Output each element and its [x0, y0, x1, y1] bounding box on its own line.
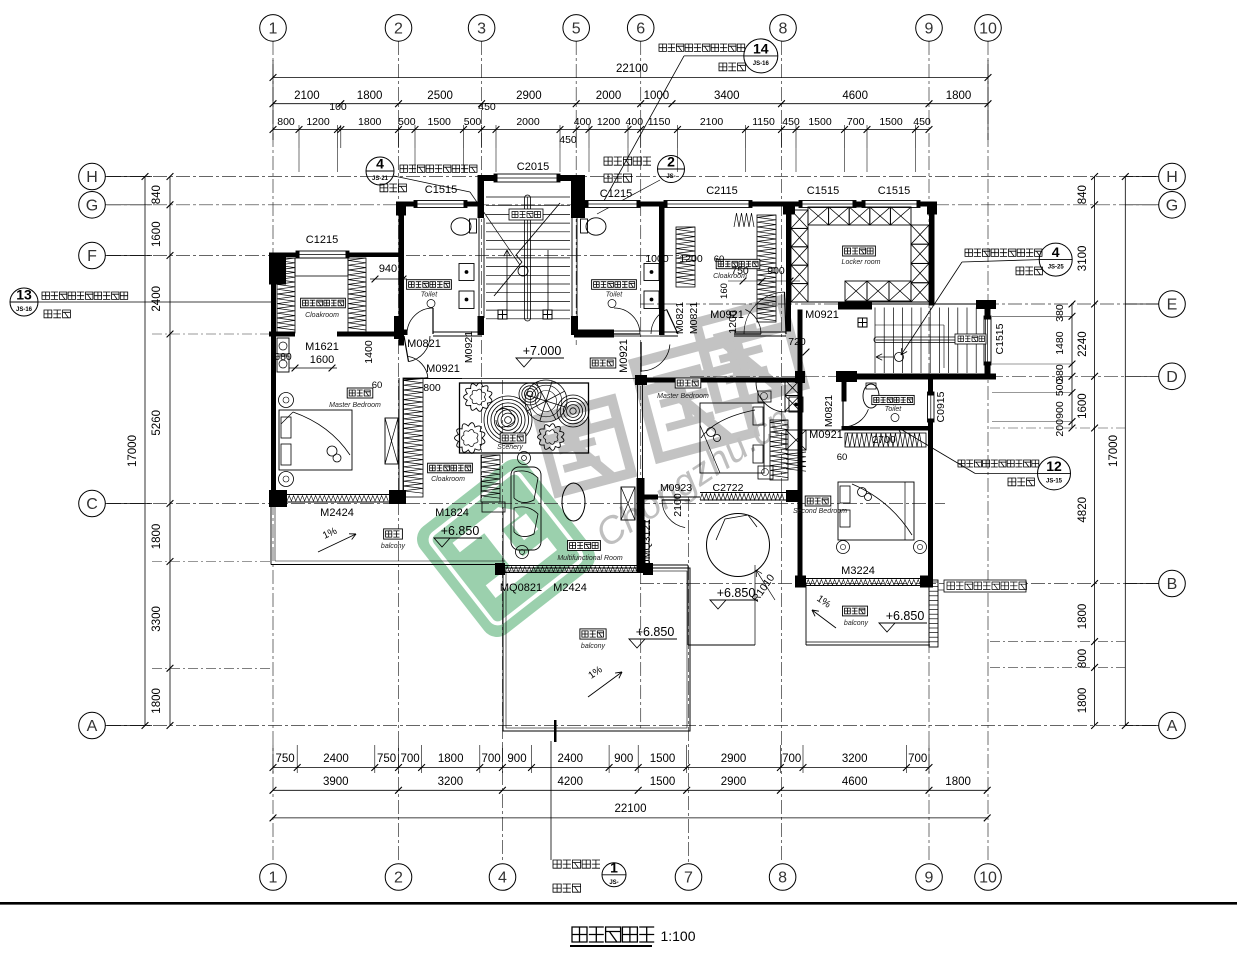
svg-text:C1515: C1515	[994, 323, 1006, 354]
svg-text:JS-16: JS-16	[753, 61, 770, 67]
svg-text:3300: 3300	[151, 606, 163, 632]
svg-text:7: 7	[684, 870, 693, 887]
svg-text:JS-15: JS-15	[1046, 478, 1063, 484]
svg-text:450: 450	[782, 116, 800, 128]
svg-text:1200: 1200	[306, 116, 330, 128]
svg-text:4: 4	[498, 870, 507, 887]
svg-text:22100: 22100	[615, 803, 647, 815]
svg-text:balcony: balcony	[581, 643, 606, 650]
svg-text:60: 60	[372, 380, 383, 391]
svg-text:1: 1	[269, 20, 278, 37]
svg-text:900: 900	[767, 265, 785, 277]
svg-text:750: 750	[377, 753, 396, 765]
svg-text:JS-: JS-	[609, 880, 618, 886]
svg-text:1800: 1800	[358, 116, 382, 128]
svg-text:2100: 2100	[672, 493, 684, 517]
svg-text:+6.850: +6.850	[717, 586, 756, 600]
svg-text:450: 450	[913, 116, 931, 128]
svg-text:200: 200	[1054, 419, 1066, 437]
svg-text:+6.850: +6.850	[886, 609, 925, 623]
svg-text:9: 9	[925, 870, 934, 887]
svg-text:750: 750	[731, 265, 749, 277]
svg-text:1480: 1480	[1054, 331, 1066, 355]
svg-text:1600: 1600	[310, 354, 334, 366]
svg-text:H: H	[86, 169, 98, 186]
svg-text:balcony: balcony	[381, 543, 406, 550]
svg-text:3100: 3100	[1077, 246, 1089, 272]
svg-text:1800: 1800	[151, 524, 163, 550]
svg-text:M0821: M0821	[407, 338, 441, 350]
svg-text:2000: 2000	[516, 116, 540, 128]
svg-text:2: 2	[394, 870, 403, 887]
svg-text:1800: 1800	[946, 90, 972, 102]
svg-text:1000: 1000	[645, 253, 669, 265]
svg-text:17000: 17000	[127, 435, 139, 467]
svg-text:1: 1	[610, 859, 618, 875]
svg-text:750: 750	[276, 753, 295, 765]
svg-text:100: 100	[329, 101, 347, 113]
svg-text:1150: 1150	[752, 116, 775, 128]
svg-text:+6.850: +6.850	[636, 625, 675, 639]
svg-text:Cloakroom: Cloakroom	[305, 312, 339, 319]
svg-text:2700: 2700	[872, 434, 896, 446]
svg-text:JS-25: JS-25	[1048, 265, 1065, 271]
svg-text:F: F	[87, 248, 97, 265]
svg-text:8: 8	[779, 20, 788, 37]
svg-text:1500: 1500	[879, 116, 903, 128]
svg-text:C2722: C2722	[713, 482, 744, 494]
svg-text:500: 500	[464, 116, 482, 128]
svg-text:C1215: C1215	[306, 234, 338, 246]
svg-text:4600: 4600	[842, 90, 868, 102]
svg-text:1: 1	[269, 870, 278, 887]
svg-text:450: 450	[559, 134, 577, 146]
svg-text:C1515: C1515	[807, 185, 839, 197]
svg-text:1800: 1800	[945, 776, 971, 788]
svg-text:C: C	[86, 496, 98, 513]
svg-text:2400: 2400	[151, 286, 163, 312]
svg-text:14: 14	[753, 40, 769, 56]
svg-text:13: 13	[16, 287, 32, 303]
svg-text:3900: 3900	[323, 776, 349, 788]
svg-text:2900: 2900	[721, 753, 747, 765]
svg-text:+7.000: +7.000	[523, 344, 562, 358]
svg-text:4: 4	[1052, 244, 1060, 260]
svg-text:1500: 1500	[650, 776, 676, 788]
svg-text:160: 160	[719, 283, 730, 299]
svg-text:700: 700	[847, 116, 865, 128]
svg-text:500: 500	[1054, 378, 1066, 396]
svg-text:6: 6	[636, 20, 645, 37]
svg-text:E: E	[1167, 297, 1178, 314]
svg-text:3200: 3200	[438, 776, 464, 788]
svg-text:G: G	[1166, 197, 1178, 214]
svg-text:1400: 1400	[363, 340, 375, 364]
svg-text:2240: 2240	[1077, 331, 1089, 357]
svg-text:2400: 2400	[323, 753, 349, 765]
svg-text:M2424: M2424	[320, 507, 354, 519]
svg-text:1800: 1800	[1077, 688, 1089, 714]
svg-text:1800: 1800	[151, 688, 163, 714]
svg-text:2: 2	[394, 20, 403, 37]
svg-text:700: 700	[482, 753, 501, 765]
svg-text:1600: 1600	[1077, 393, 1089, 419]
svg-text:700: 700	[908, 753, 927, 765]
svg-text:JS-16: JS-16	[16, 307, 33, 313]
svg-text:2100: 2100	[294, 90, 320, 102]
svg-text:2500: 2500	[427, 90, 453, 102]
svg-text:680: 680	[274, 351, 292, 363]
svg-text:M0821: M0821	[688, 302, 700, 334]
svg-text:M0821: M0821	[674, 302, 686, 334]
svg-text:C0915: C0915	[935, 391, 947, 422]
svg-text:B: B	[1167, 576, 1178, 593]
svg-text:H: H	[1166, 169, 1178, 186]
svg-text:500: 500	[398, 116, 416, 128]
svg-text:12: 12	[1046, 458, 1062, 474]
svg-text:10: 10	[979, 20, 997, 37]
svg-text:840: 840	[151, 185, 163, 204]
svg-text:Cloakroom: Cloakroom	[431, 476, 465, 483]
svg-text:380: 380	[1054, 304, 1066, 322]
svg-text:M0821: M0821	[823, 395, 835, 427]
svg-text:1800: 1800	[1077, 604, 1089, 630]
svg-text:2400: 2400	[558, 753, 584, 765]
svg-text:22100: 22100	[616, 63, 648, 75]
svg-text:MQ0821: MQ0821	[500, 582, 542, 594]
svg-text:1600: 1600	[151, 221, 163, 247]
svg-text:JS-21: JS-21	[372, 176, 389, 182]
svg-text:8: 8	[778, 870, 787, 887]
svg-text:M2424: M2424	[553, 582, 587, 594]
svg-text:1000: 1000	[644, 90, 670, 102]
svg-text:450: 450	[478, 101, 496, 113]
svg-text:G: G	[86, 197, 98, 214]
svg-text:900: 900	[507, 753, 526, 765]
svg-text:A: A	[87, 718, 98, 735]
svg-text:1500: 1500	[428, 116, 452, 128]
svg-text:1500: 1500	[650, 753, 676, 765]
svg-text:5260: 5260	[151, 410, 163, 436]
svg-text:Toilet: Toilet	[885, 406, 903, 413]
svg-text:M1621: M1621	[305, 341, 339, 353]
svg-text:M0921: M0921	[710, 309, 744, 321]
svg-text:3: 3	[477, 20, 486, 37]
svg-text:800: 800	[1077, 649, 1089, 668]
svg-text:1500: 1500	[808, 116, 832, 128]
svg-text:C2115: C2115	[706, 185, 738, 197]
svg-text:C1215: C1215	[600, 188, 632, 200]
svg-text:Scenery: Scenery	[497, 444, 523, 451]
svg-text:840: 840	[1077, 185, 1089, 204]
svg-text:2900: 2900	[721, 776, 747, 788]
svg-text:1150: 1150	[648, 116, 671, 128]
svg-text:800: 800	[277, 116, 295, 128]
svg-text:1800: 1800	[438, 753, 464, 765]
svg-text:900: 900	[614, 753, 633, 765]
svg-text:Master Bedroom: Master Bedroom	[657, 393, 709, 400]
svg-text:M0923: M0923	[660, 482, 692, 494]
svg-text:2: 2	[667, 154, 675, 170]
svg-text:10: 10	[979, 870, 997, 887]
svg-text:C1515: C1515	[878, 185, 910, 197]
svg-text:2100: 2100	[700, 116, 724, 128]
svg-text:Locker room: Locker room	[842, 259, 881, 266]
svg-text:C2015: C2015	[517, 161, 549, 173]
svg-text:M0921: M0921	[463, 331, 475, 363]
svg-text:Toilet: Toilet	[421, 292, 439, 299]
svg-text:M0921: M0921	[809, 429, 843, 441]
svg-text:940: 940	[379, 263, 397, 275]
svg-text:720: 720	[788, 336, 806, 348]
svg-text:A: A	[1167, 718, 1178, 735]
svg-text:60: 60	[837, 452, 848, 463]
svg-text:60: 60	[714, 254, 725, 265]
svg-text:Second Bedroom: Second Bedroom	[793, 508, 847, 515]
svg-text:4: 4	[376, 156, 384, 172]
svg-text:700: 700	[401, 753, 420, 765]
svg-text:D: D	[1166, 369, 1178, 386]
svg-text:balcony: balcony	[844, 620, 869, 627]
svg-text:1200: 1200	[679, 253, 703, 265]
svg-text:M0921: M0921	[618, 339, 630, 373]
svg-text:M0921: M0921	[805, 309, 839, 321]
svg-text:+6.850: +6.850	[441, 524, 480, 538]
svg-text:2900: 2900	[516, 90, 542, 102]
svg-text:700: 700	[782, 753, 801, 765]
svg-text:3200: 3200	[842, 753, 868, 765]
svg-text:1800: 1800	[357, 90, 383, 102]
svg-text:3400: 3400	[714, 90, 740, 102]
svg-text:1200: 1200	[597, 116, 621, 128]
svg-text:4600: 4600	[842, 776, 868, 788]
svg-text:Multifunctional Room: Multifunctional Room	[557, 555, 623, 562]
svg-text:2000: 2000	[596, 90, 622, 102]
svg-text:ZJMQ3121: ZJMQ3121	[641, 519, 653, 571]
svg-text:9: 9	[925, 20, 934, 37]
svg-text:5: 5	[572, 20, 581, 37]
svg-text:900: 900	[1054, 401, 1066, 419]
svg-text:M3224: M3224	[841, 565, 875, 577]
svg-text:Master Bedroom: Master Bedroom	[329, 402, 381, 409]
svg-text:4820: 4820	[1077, 497, 1089, 523]
svg-text:Toilet: Toilet	[606, 292, 624, 299]
svg-text:4200: 4200	[558, 776, 584, 788]
svg-text:17000: 17000	[1108, 435, 1120, 467]
svg-text:M1824: M1824	[435, 507, 469, 519]
svg-text:1:100: 1:100	[660, 928, 695, 944]
svg-text:JS-: JS-	[666, 174, 675, 180]
svg-text:M0921: M0921	[426, 363, 460, 375]
svg-text:800: 800	[423, 382, 441, 394]
